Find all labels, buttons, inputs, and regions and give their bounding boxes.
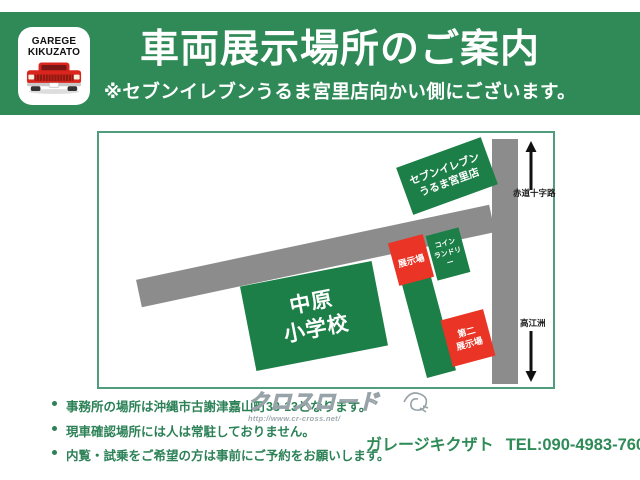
flyer-page: GAREGE KIKUZATO 車両展示場所のご案内 ※セブンイレブンうるま宮里… xyxy=(0,0,640,480)
map-block-seven-eleven: セブンイレブン うるま宮里店 xyxy=(396,137,498,215)
location-map: セブンイレブン うるま宮里店 中原 小学校 展示場 コイン ランドリー 第二 展… xyxy=(97,131,555,389)
page-subtitle: ※セブンイレブンうるま宮里店向かい側にございます。 xyxy=(100,78,580,104)
note-unattended: 現車確認場所には人は常駐しておりません。 xyxy=(50,421,380,440)
watermark-mascot-icon xyxy=(400,388,430,414)
notes-list: 事務所の場所は沖縄市古謝津嘉山町33-13となります。 現車確認場所には人は常駐… xyxy=(50,396,380,470)
road-label-south: 高江洲 xyxy=(520,317,546,329)
shop-logo: GAREGE KIKUZATO xyxy=(18,27,90,105)
shop-logo-text: GAREGE KIKUZATO xyxy=(28,37,80,58)
road-vertical xyxy=(492,139,518,384)
header-banner: GAREGE KIKUZATO 車両展示場所のご案内 ※セブンイレブンうるま宮里… xyxy=(0,12,640,115)
contact-line: ガレージキクザトTEL:090-4983-7602 xyxy=(366,431,640,455)
header-text: 車両展示場所のご案内 ※セブンイレブンうるま宮里店向かい側にございます。 xyxy=(100,12,580,115)
display-lot-label: 展示場 xyxy=(396,250,425,270)
shop-logo-line2: KIKUZATO xyxy=(28,48,80,59)
phone-number: TEL:090-4983-7602 xyxy=(506,436,640,454)
shop-name: ガレージキクザト xyxy=(366,437,494,454)
south-arrow-icon xyxy=(525,330,537,382)
page-title: 車両展示場所のご案内 xyxy=(100,26,580,75)
note-reservation: 内覧・試乗をご希望の方は事前にご予約をお願いします。 xyxy=(50,445,380,464)
note-office-address: 事務所の場所は沖縄市古謝津嘉山町33-13となります。 xyxy=(50,396,380,415)
shop-logo-line1: GAREGE xyxy=(28,37,80,48)
road-label-north: 赤道十字路 xyxy=(513,187,556,199)
classic-car-icon xyxy=(25,61,83,95)
north-arrow-icon xyxy=(525,141,537,191)
